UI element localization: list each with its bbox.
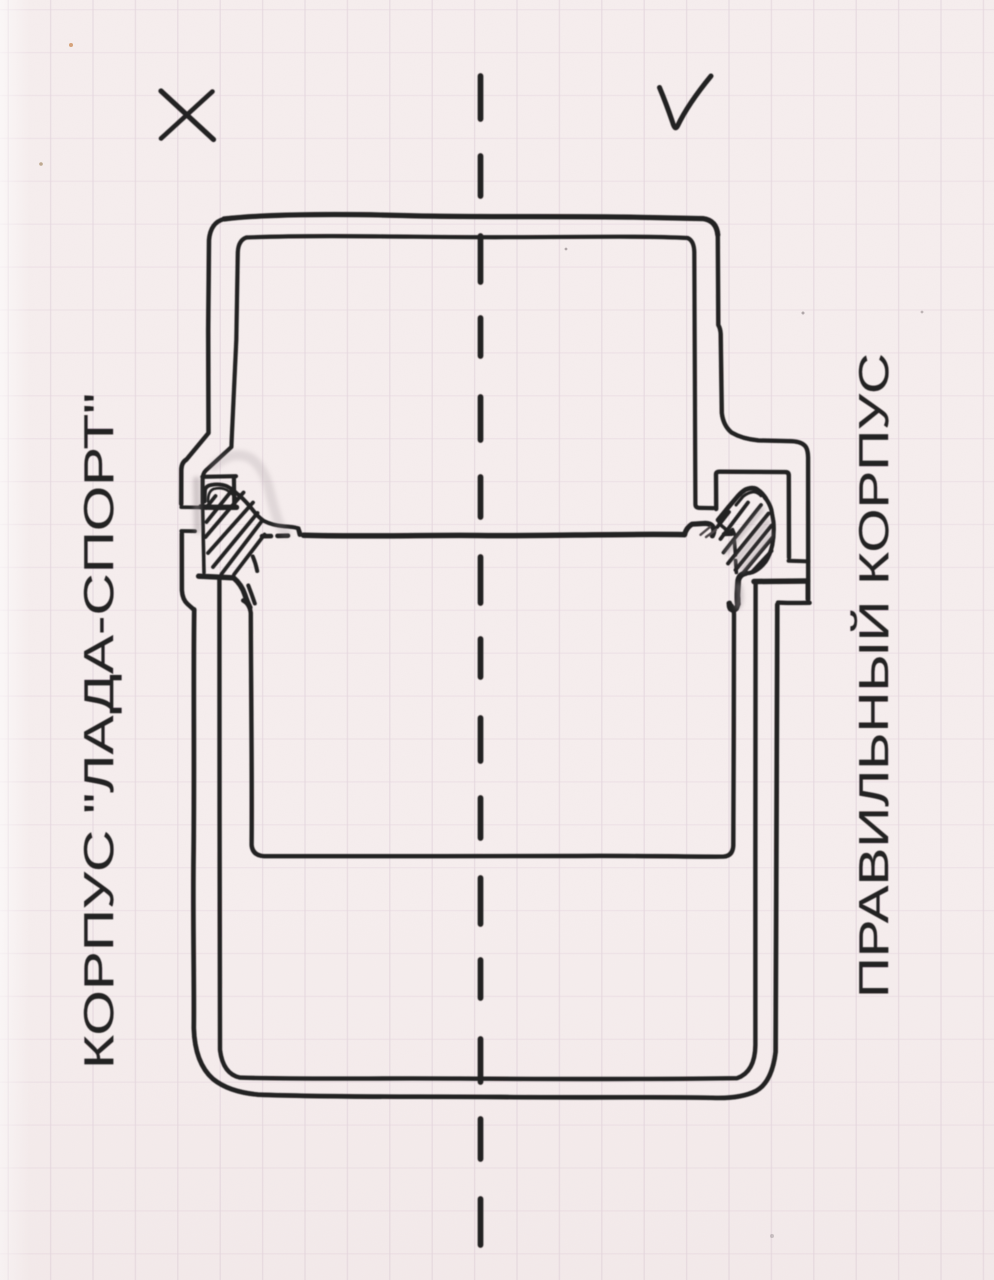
svg-text:ПРАВИЛЬНЫЙ КОРПУС: ПРАВИЛЬНЫЙ КОРПУС [849, 353, 897, 998]
svg-text:КОРПУС "ЛАДА-СПОРТ": КОРПУС "ЛАДА-СПОРТ" [75, 393, 122, 1069]
